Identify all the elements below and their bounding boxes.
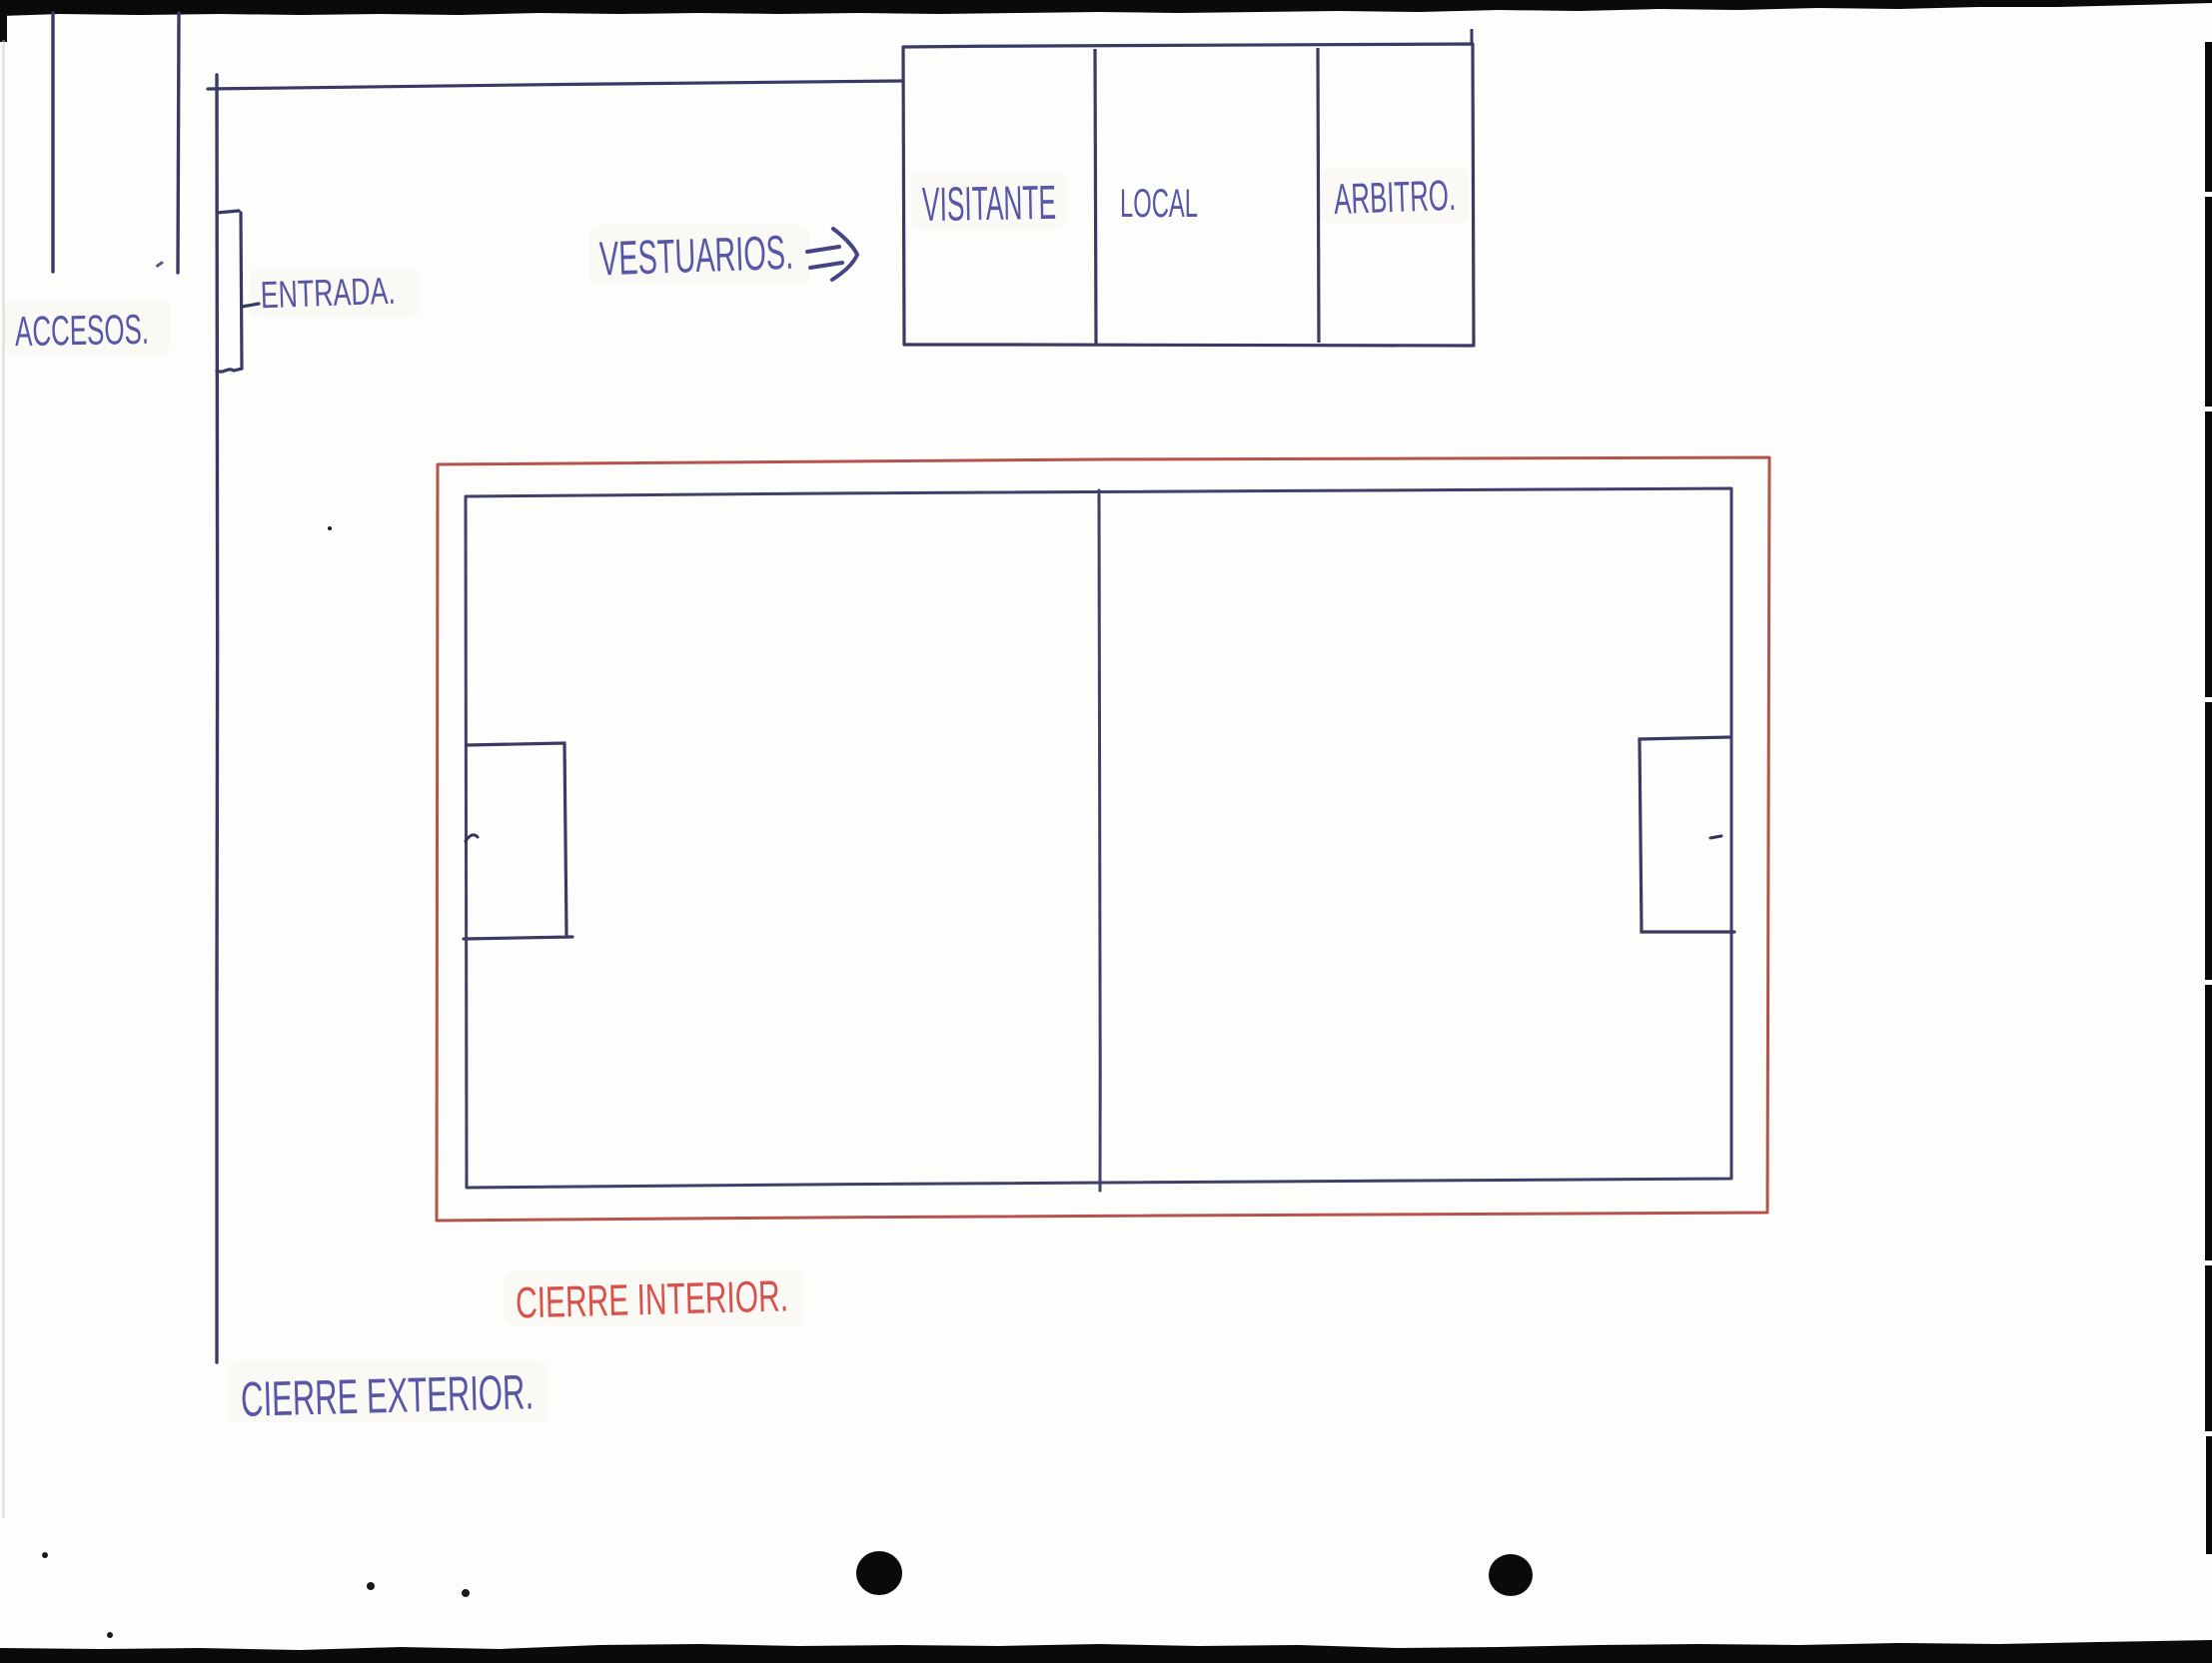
svg-text:ACCESOS.: ACCESOS. <box>15 306 150 355</box>
svg-text:CIERRE INTERIOR.: CIERRE INTERIOR. <box>515 1271 788 1327</box>
svg-text:ENTRADA.: ENTRADA. <box>260 271 396 318</box>
svg-text:CIERRE EXTERIOR.: CIERRE EXTERIOR. <box>240 1365 534 1427</box>
svg-text:VESTUARIOS.: VESTUARIOS. <box>598 227 794 287</box>
svg-text:LOCAL: LOCAL <box>1120 182 1198 226</box>
svg-text:VISITANTE: VISITANTE <box>922 177 1057 232</box>
svg-text:ARBITRO.: ARBITRO. <box>1333 172 1457 224</box>
